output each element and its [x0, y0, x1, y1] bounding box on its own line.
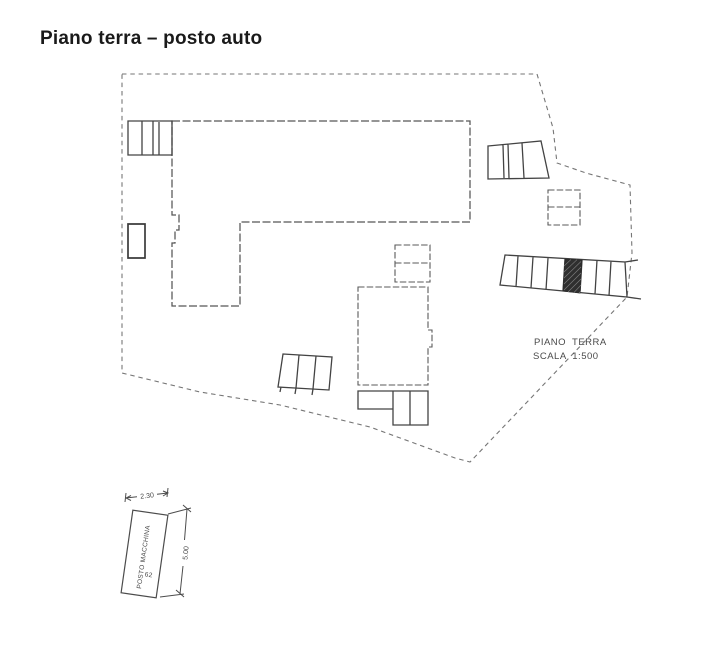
central-building — [358, 287, 432, 385]
three-stall-outline — [278, 354, 332, 390]
main-building-outline — [172, 121, 470, 306]
detail-stall-label: POSTO MACCHINA — [136, 524, 152, 589]
parking-detail: POSTO MACCHINA 62 2.30 5.00 — [121, 488, 191, 598]
detail-stall-number: 62 — [144, 571, 153, 579]
left-small-rectangle — [128, 224, 145, 258]
three-stall-block — [278, 354, 332, 395]
stall-block-top-left — [128, 121, 172, 155]
site-boundary — [122, 74, 632, 462]
plan-label: PIANO TERRA — [534, 337, 607, 348]
height-dimension: 5.00 — [160, 505, 191, 597]
two-row-box-right — [548, 190, 580, 225]
two-cell-box-center — [395, 245, 430, 282]
stall-block-top-right — [488, 141, 549, 179]
parking-stall-row — [500, 255, 641, 299]
lower-stall-cluster — [358, 391, 428, 425]
width-dimension: 2.30 — [125, 488, 168, 502]
floor-plan-drawing: PIANO TERRA SCALA 1:500 POSTO MACCHINA 6… — [0, 0, 719, 649]
scale-label: SCALA 1:500 — [533, 351, 599, 362]
width-dimension-label: 2.30 — [140, 492, 154, 500]
document-page: Piano terra – posto auto — [0, 0, 719, 649]
height-dimension-label: 5.00 — [182, 546, 190, 560]
